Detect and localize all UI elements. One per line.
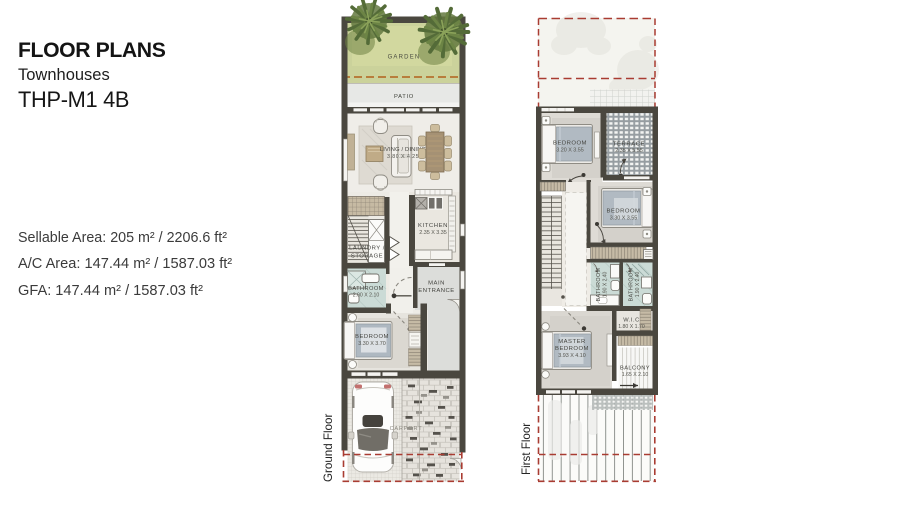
svg-text:FLOOR PLANS: FLOOR PLANS	[18, 39, 166, 62]
svg-text:W.I.C: W.I.C	[623, 318, 639, 324]
svg-text:1.90 X 2.40: 1.90 X 2.40	[635, 271, 641, 297]
svg-text:THP-M1 4B: THP-M1 4B	[18, 87, 129, 112]
svg-text:BEDROOM: BEDROOM	[607, 209, 641, 215]
svg-text:1.90 X 2.40: 1.90 X 2.40	[603, 271, 609, 297]
svg-text:3.30 X 3.55: 3.30 X 3.55	[610, 216, 638, 222]
svg-text:3.20 X 3.55: 3.20 X 3.55	[556, 148, 584, 154]
svg-text:BATHROOM: BATHROOM	[596, 267, 602, 301]
svg-text:1.65 X 2.10: 1.65 X 2.10	[622, 372, 649, 378]
svg-text:MAIN: MAIN	[428, 281, 445, 287]
svg-text:BALCONY: BALCONY	[620, 366, 650, 372]
svg-text:MASTER: MASTER	[558, 339, 586, 345]
svg-text:A/C Area: 147.44 m² / 1587.03: A/C Area: 147.44 m² / 1587.03 ft²	[18, 256, 232, 272]
svg-text:KITCHEN: KITCHEN	[418, 223, 448, 229]
svg-text:BEDROOM: BEDROOM	[553, 141, 587, 147]
svg-text:First Floor: First Floor	[520, 423, 533, 475]
svg-text:CARPORT: CARPORT	[390, 426, 423, 432]
svg-text:GARDEN: GARDEN	[388, 55, 421, 61]
svg-text:1.80 X 1.70: 1.80 X 1.70	[618, 324, 645, 330]
svg-text:LAUNDRY /: LAUNDRY /	[349, 246, 385, 252]
svg-text:BEDROOM: BEDROOM	[355, 334, 389, 340]
svg-text:BATHROOM: BATHROOM	[629, 267, 635, 301]
svg-text:STORAGE: STORAGE	[351, 254, 383, 260]
svg-text:ENTRANCE: ENTRANCE	[418, 288, 454, 294]
svg-text:GFA: 147.44 m² / 1587.03 ft²: GFA: 147.44 m² / 1587.03 ft²	[18, 283, 203, 299]
svg-text:2.00 X 2.10: 2.00 X 2.10	[353, 293, 380, 299]
svg-text:Townhouses: Townhouses	[18, 66, 110, 84]
svg-text:Ground Floor: Ground Floor	[322, 414, 335, 482]
svg-text:3.30 X 3.70: 3.30 X 3.70	[358, 341, 386, 347]
svg-text:TERRACE: TERRACE	[613, 142, 645, 148]
svg-text:PATIO: PATIO	[394, 94, 414, 100]
svg-text:3.80 X 4.25: 3.80 X 4.25	[387, 154, 419, 160]
svg-text:2.35 X 3.35: 2.35 X 3.35	[419, 230, 447, 236]
svg-text:BATHROOM: BATHROOM	[348, 286, 384, 292]
svg-text:2.35 X 5.55: 2.35 X 5.55	[615, 148, 643, 154]
svg-text:3.93 X 4.10: 3.93 X 4.10	[558, 353, 586, 359]
svg-text:BEDROOM: BEDROOM	[555, 346, 589, 352]
svg-text:Sellable Area: 205 m² / 2206.6: Sellable Area: 205 m² / 2206.6 ft²	[18, 230, 227, 246]
